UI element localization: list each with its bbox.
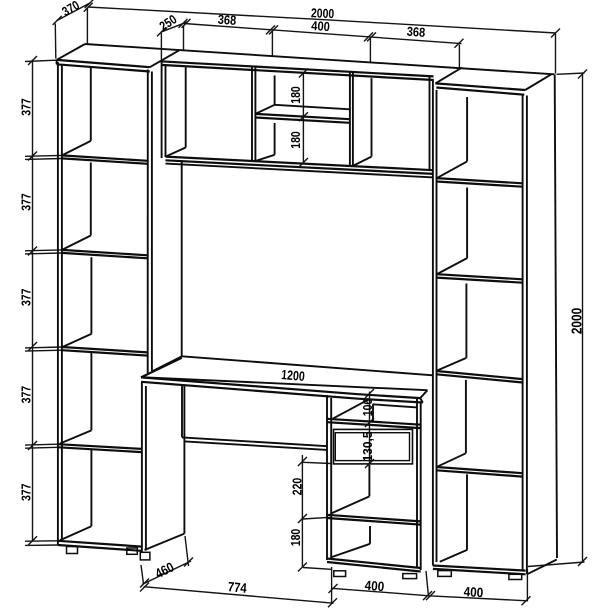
- svg-text:400: 400: [364, 578, 385, 594]
- svg-text:368: 368: [217, 12, 237, 28]
- svg-text:377: 377: [18, 484, 33, 502]
- svg-text:377: 377: [18, 98, 33, 116]
- svg-text:130,5: 130,5: [360, 432, 375, 462]
- svg-text:368: 368: [406, 24, 426, 40]
- svg-text:377: 377: [18, 289, 33, 307]
- svg-text:180: 180: [288, 86, 303, 104]
- svg-text:2000: 2000: [569, 308, 586, 334]
- svg-text:400: 400: [463, 584, 483, 600]
- svg-text:400: 400: [311, 18, 331, 34]
- svg-text:1200: 1200: [281, 367, 306, 384]
- svg-text:220: 220: [290, 478, 305, 496]
- svg-text:774: 774: [227, 579, 248, 596]
- svg-text:377: 377: [18, 193, 33, 211]
- svg-text:377: 377: [18, 386, 33, 404]
- svg-text:180: 180: [288, 529, 303, 547]
- svg-text:180: 180: [288, 131, 303, 149]
